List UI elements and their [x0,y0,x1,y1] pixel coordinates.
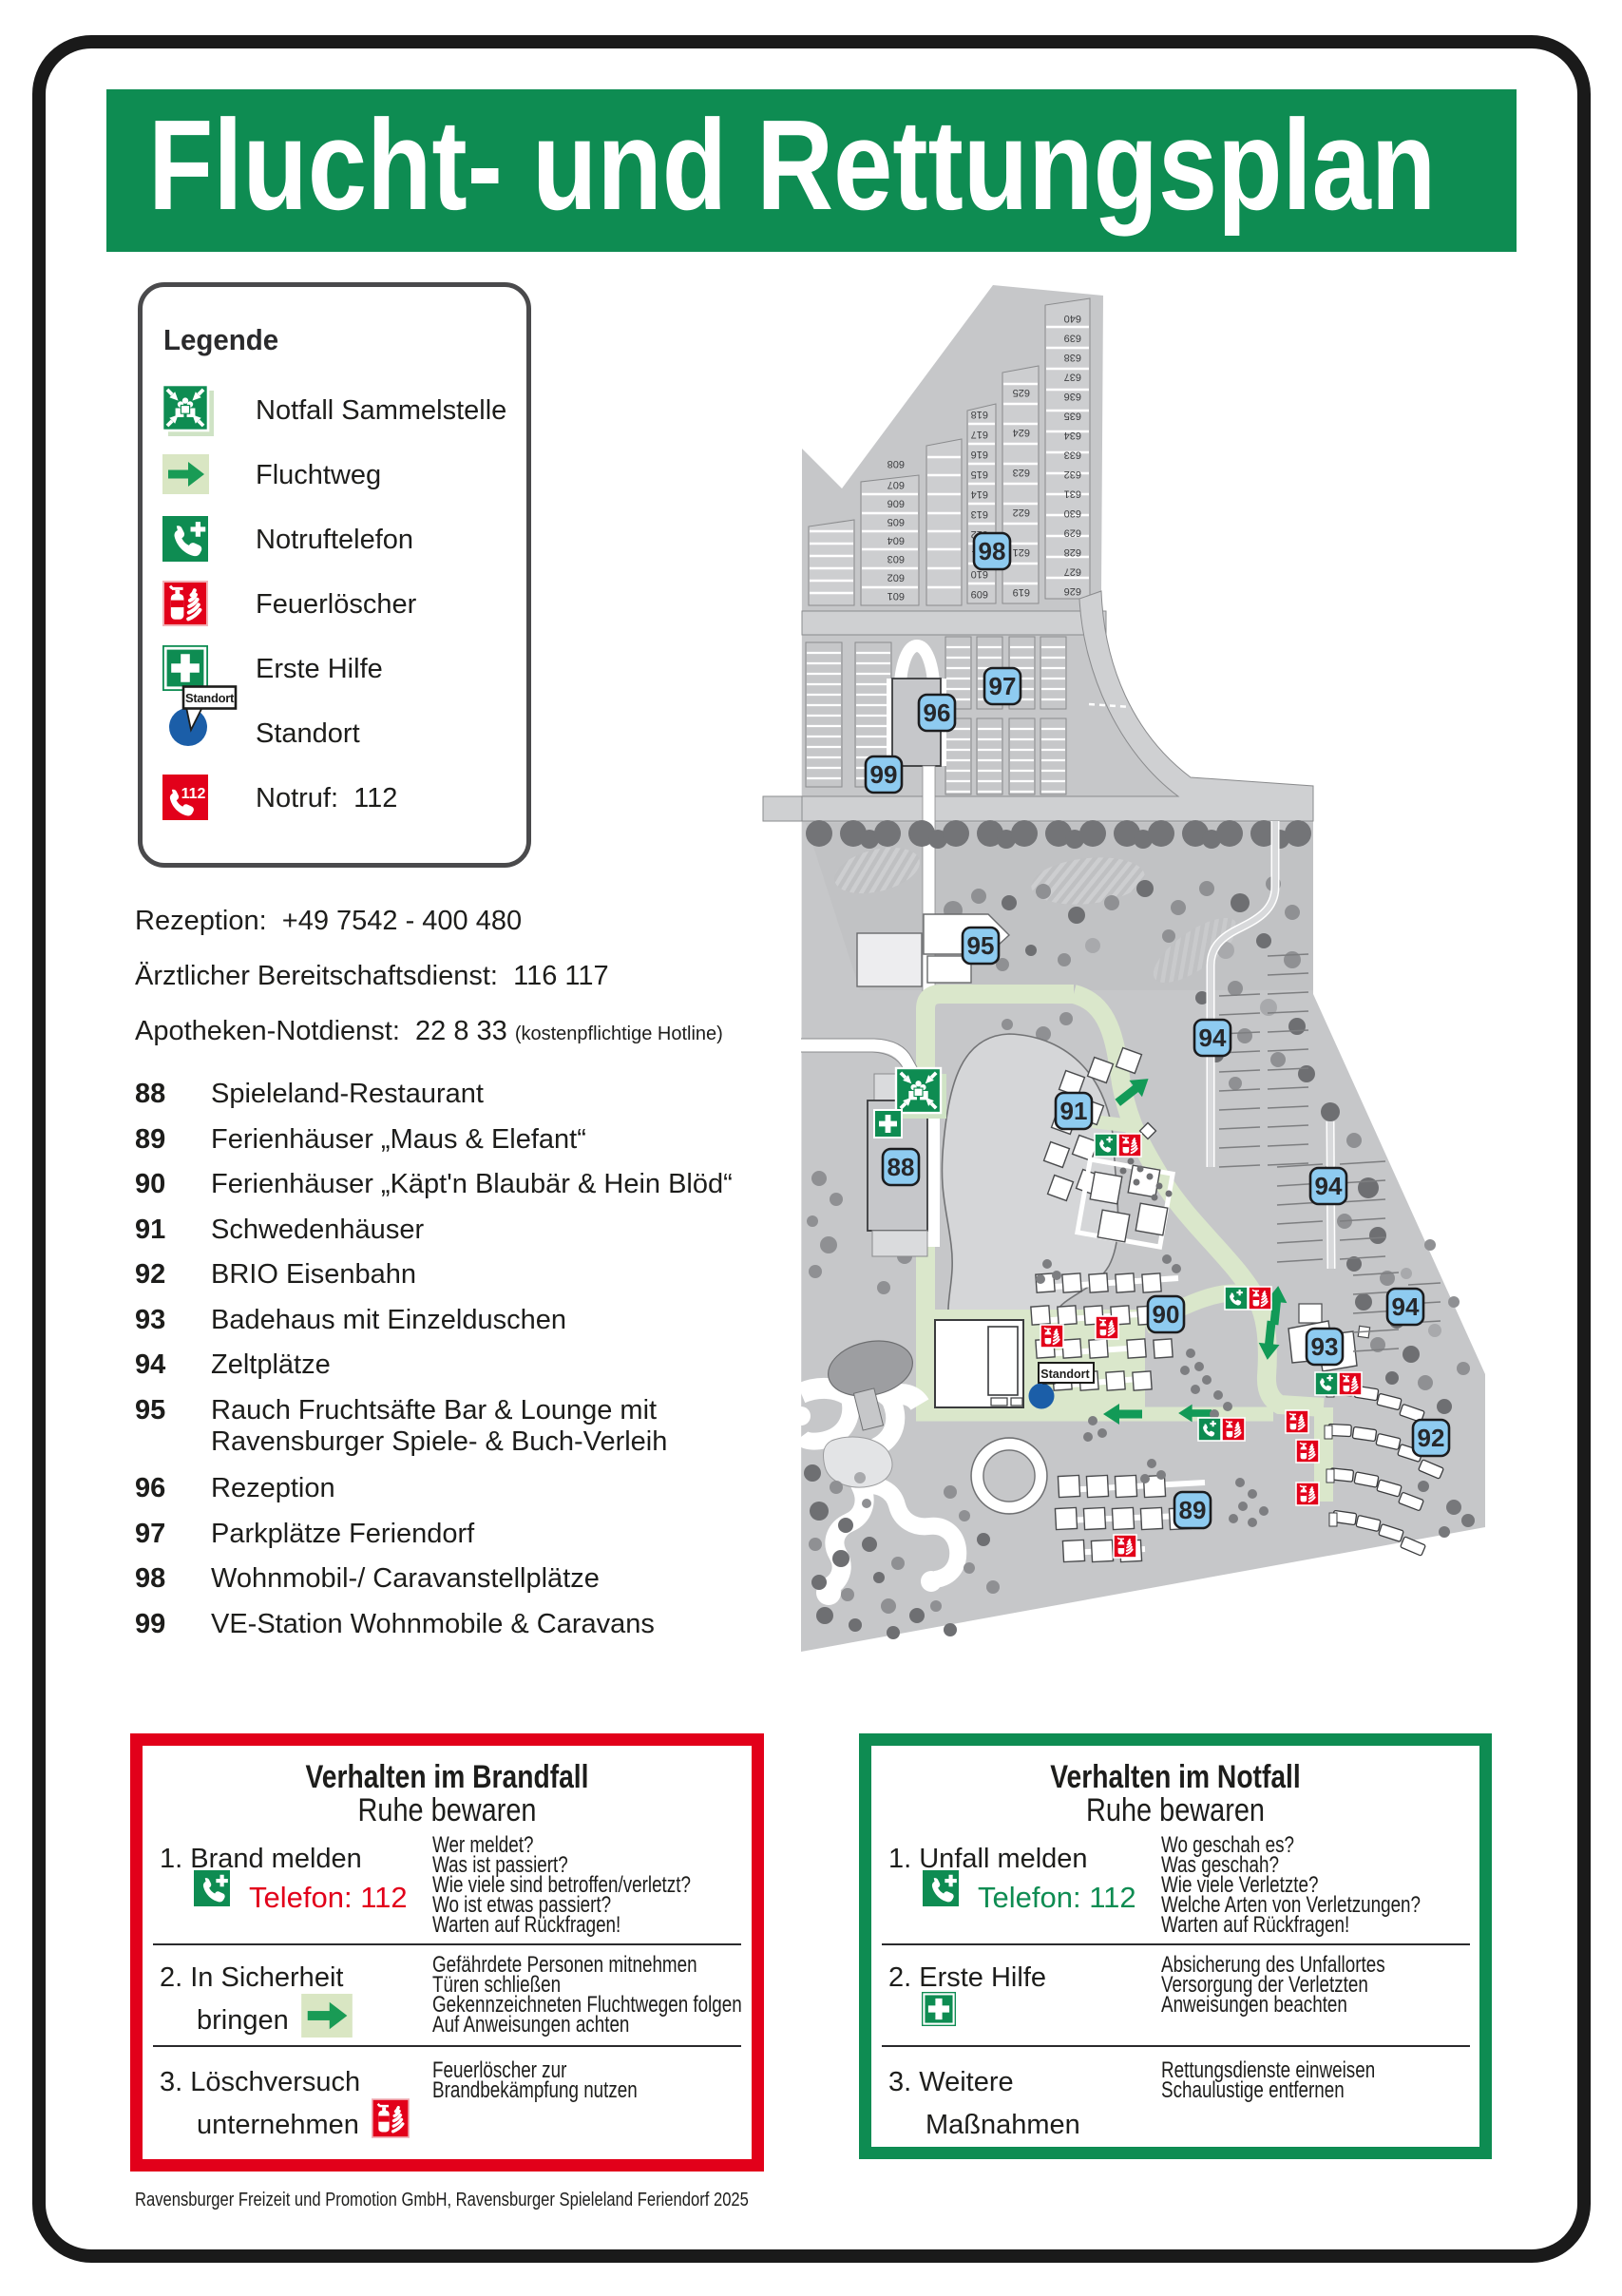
svg-text:602: 602 [887,572,905,584]
svg-text:90: 90 [1153,1300,1180,1329]
svg-text:601: 601 [887,590,905,602]
svg-text:632: 632 [1064,469,1081,480]
svg-text:616: 616 [971,449,988,460]
svg-text:Standort: Standort [1040,1368,1090,1381]
svg-text:625: 625 [1013,387,1030,398]
svg-text:603: 603 [887,553,905,564]
svg-text:98: 98 [979,537,1006,565]
svg-text:627: 627 [1064,566,1081,578]
svg-text:92: 92 [1418,1424,1445,1452]
svg-text:615: 615 [971,469,988,480]
svg-text:638: 638 [1064,352,1081,363]
svg-text:637: 637 [1064,372,1081,383]
svg-text:97: 97 [989,672,1017,700]
svg-text:622: 622 [1013,507,1030,518]
svg-text:91: 91 [1060,1097,1088,1125]
svg-text:94: 94 [1199,1024,1227,1052]
svg-text:623: 623 [1013,467,1030,478]
svg-text:631: 631 [1064,488,1081,500]
svg-text:609: 609 [971,588,988,600]
svg-text:626: 626 [1064,585,1081,597]
svg-text:628: 628 [1064,546,1081,558]
svg-text:640: 640 [1064,313,1081,324]
svg-text:89: 89 [1179,1496,1207,1524]
svg-text:608: 608 [887,458,905,469]
svg-text:614: 614 [971,488,988,500]
svg-text:95: 95 [967,931,995,960]
svg-text:Standort: Standort [185,691,235,705]
svg-text:635: 635 [1064,411,1081,422]
svg-text:618: 618 [971,409,988,420]
svg-text:639: 639 [1064,333,1081,344]
svg-text:604: 604 [887,535,905,546]
svg-text:94: 94 [1392,1292,1420,1321]
svg-text:613: 613 [971,508,988,520]
svg-text:605: 605 [887,516,905,527]
svg-text:94: 94 [1315,1172,1343,1200]
svg-text:99: 99 [870,760,898,789]
svg-text:624: 624 [1013,427,1030,438]
svg-text:96: 96 [924,698,951,727]
svg-text:629: 629 [1064,527,1081,539]
svg-text:607: 607 [887,479,905,490]
svg-text:634: 634 [1064,430,1081,441]
svg-text:88: 88 [887,1153,915,1181]
svg-text:606: 606 [887,498,905,509]
svg-text:112: 112 [181,786,206,802]
svg-text:619: 619 [1013,586,1030,598]
svg-text:617: 617 [971,429,988,440]
svg-text:93: 93 [1311,1332,1339,1361]
svg-text:633: 633 [1064,450,1081,461]
svg-text:621: 621 [1013,546,1030,558]
svg-text:630: 630 [1064,507,1081,519]
svg-text:636: 636 [1064,391,1081,402]
